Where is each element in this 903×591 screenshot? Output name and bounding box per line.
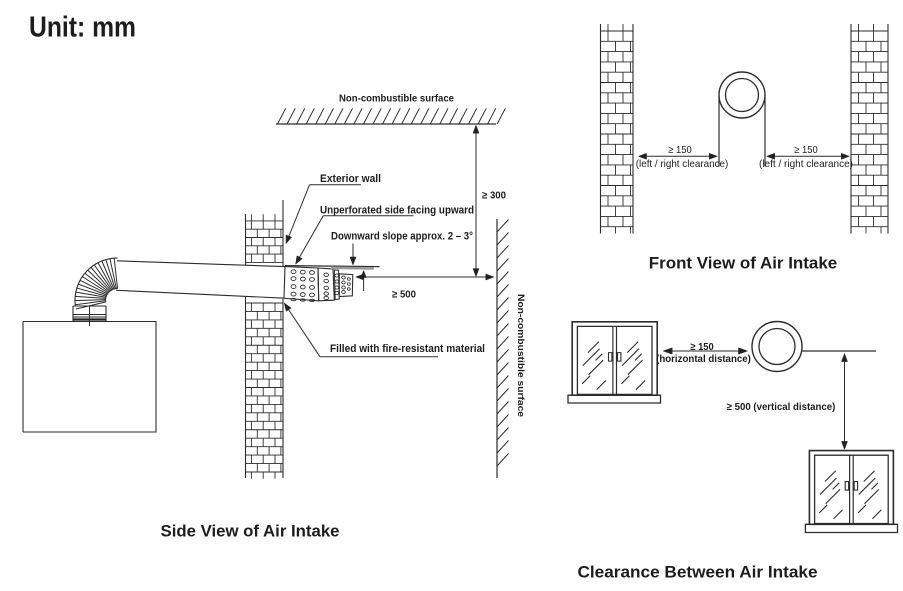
svg-text:≥ 150: ≥ 150 [668,144,692,156]
svg-text:(left / right clearance): (left / right clearance) [636,158,729,170]
svg-text:≥ 500: ≥ 500 [392,289,416,301]
svg-text:Non-combustible surface: Non-combustible surface [339,93,454,105]
svg-text:Side View of Air Intake: Side View of Air Intake [161,523,340,541]
svg-text:Unperforated side facing upwar: Unperforated side facing upward [320,205,474,217]
svg-text:Non-combustible surface: Non-combustible surface [515,294,526,417]
svg-text:Front View of Air Intake: Front View of Air Intake [649,255,838,273]
svg-text:Filled with fire-resistant mat: Filled with fire-resistant material [330,343,485,355]
svg-text:Clearance Between Air Intake: Clearance Between Air Intake [578,563,818,582]
svg-text:(horizontal distance): (horizontal distance) [656,353,751,365]
svg-text:Downward slope approx. 2 – 3°: Downward slope approx. 2 – 3° [331,230,473,242]
svg-text:Unit: mm: Unit: mm [29,12,136,44]
svg-text:≥ 500 (vertical distance): ≥ 500 (vertical distance) [727,401,836,413]
svg-text:≥ 300: ≥ 300 [482,190,506,202]
svg-text:Exterior wall: Exterior wall [320,173,381,185]
svg-text:(left / right clearance): (left / right clearance) [759,158,853,170]
svg-text:≥ 150: ≥ 150 [794,144,818,156]
svg-text:≥ 150: ≥ 150 [690,341,713,353]
